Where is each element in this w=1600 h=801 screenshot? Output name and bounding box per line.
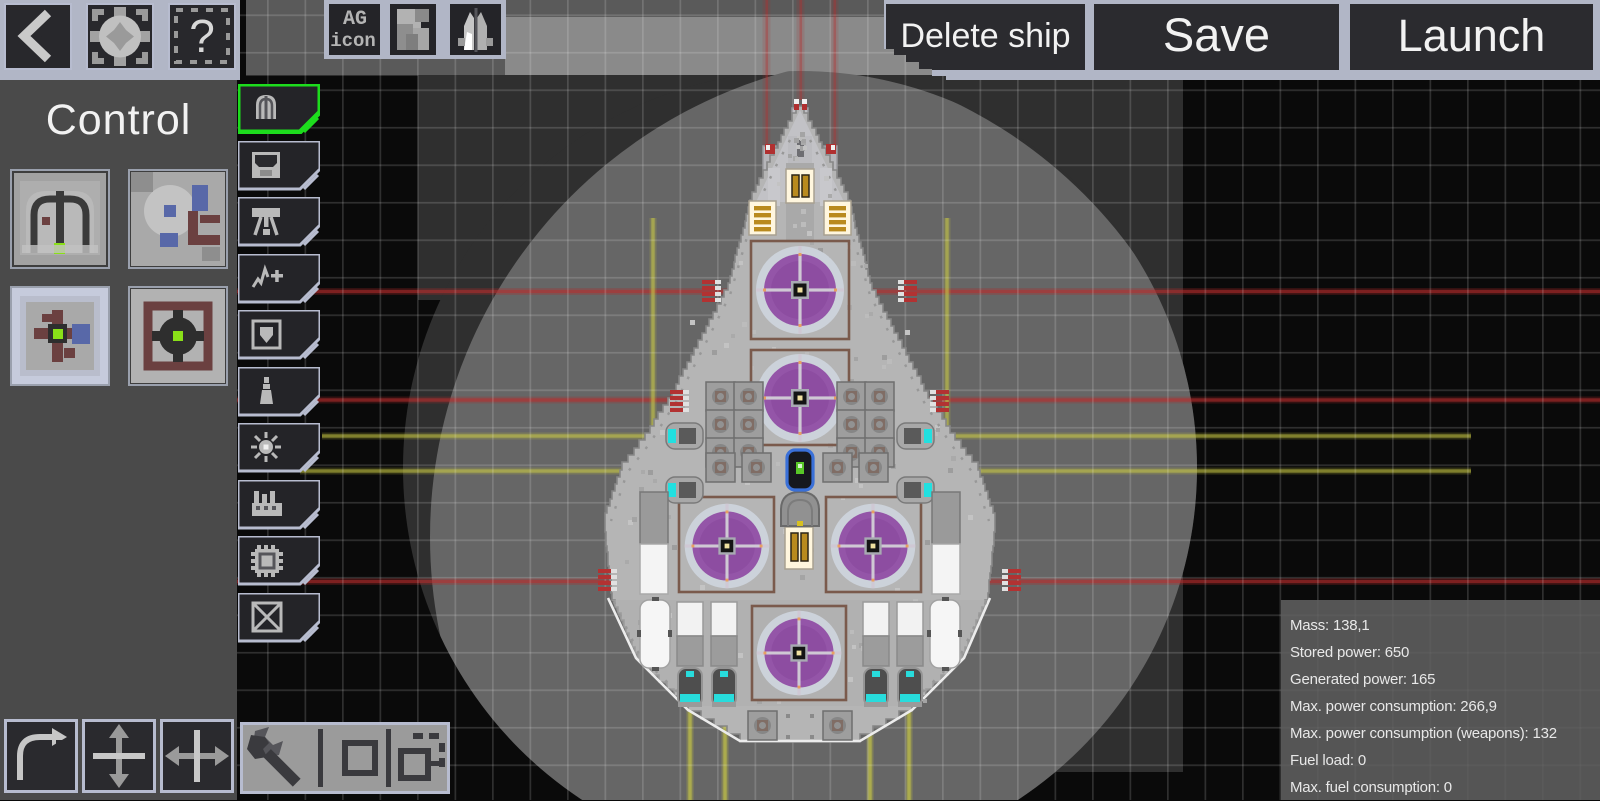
svg-text:icon: icon: [330, 30, 376, 52]
svg-text:AG: AG: [343, 8, 367, 31]
svg-text:?: ?: [189, 10, 215, 62]
